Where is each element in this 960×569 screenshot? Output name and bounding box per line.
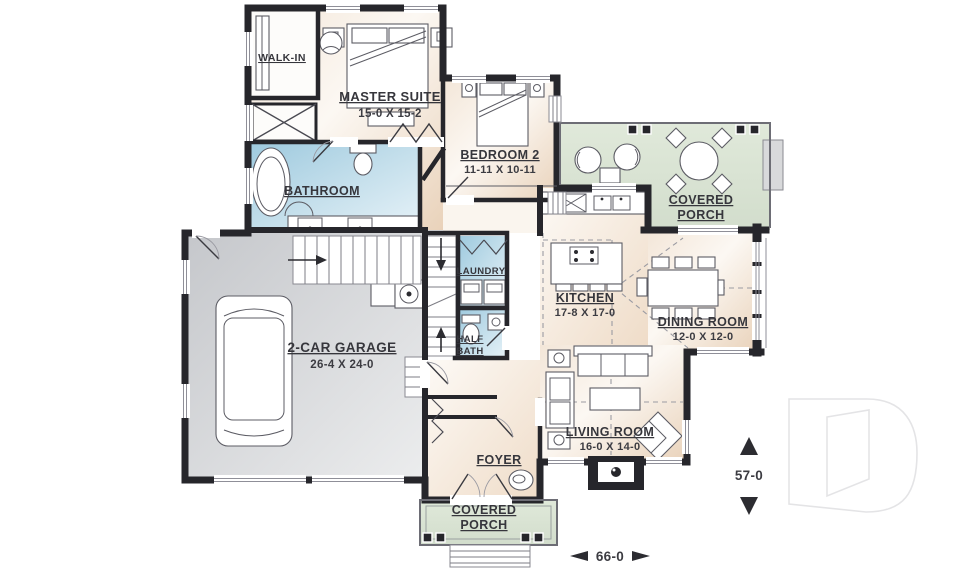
width-dimension: 66-0 bbox=[570, 549, 650, 564]
label-covered-porch-rear-2: PORCH bbox=[677, 208, 724, 222]
right-arrow-icon bbox=[632, 551, 650, 561]
label-covered-porch-rear-1: COVERED bbox=[669, 193, 734, 207]
label-covered-porch-front-2: PORCH bbox=[460, 518, 507, 532]
dims-living-room: 16-0 X 14-0 bbox=[580, 441, 641, 453]
drummond-d-logo bbox=[789, 399, 917, 512]
label-kitchen: KITCHEN bbox=[556, 291, 614, 305]
label-foyer: FOYER bbox=[476, 453, 521, 467]
chaise-icon bbox=[546, 372, 574, 428]
left-arrow-icon bbox=[570, 551, 588, 561]
dims-garage: 26-4 X 24-0 bbox=[310, 359, 373, 371]
up-arrow-icon bbox=[740, 437, 758, 455]
car-icon bbox=[216, 296, 292, 446]
sofa-icon bbox=[574, 346, 652, 376]
main-stairs bbox=[427, 236, 456, 356]
label-master-suite: MASTER SUITE bbox=[339, 89, 441, 104]
garage-stairs bbox=[288, 236, 421, 284]
kitchen-island-icon bbox=[551, 243, 622, 291]
coffee-table-icon bbox=[590, 388, 640, 410]
porch-bay bbox=[763, 140, 783, 190]
label-covered-porch-front-1: COVERED bbox=[452, 503, 517, 517]
bathtub-icon bbox=[252, 148, 290, 216]
label-bathroom: BATHROOM bbox=[284, 184, 360, 198]
width-value: 66-0 bbox=[596, 549, 624, 564]
floor-plan-drawing: WALK-IN MASTER SUITE 15-0 X 15-2 BEDROOM… bbox=[0, 0, 960, 569]
label-bedroom-2: BEDROOM 2 bbox=[460, 148, 539, 162]
label-laundry: LAUNDRY bbox=[457, 266, 506, 277]
label-half-bath-1: HALF bbox=[457, 334, 484, 345]
depth-dimension: 57-0 bbox=[735, 437, 763, 515]
label-half-bath-2: BATH bbox=[456, 346, 483, 357]
depth-value: 57-0 bbox=[735, 468, 763, 483]
label-dining-room: DINING ROOM bbox=[658, 315, 749, 329]
dims-dining-room: 12-0 X 12-0 bbox=[673, 331, 734, 343]
label-walk-in: WALK-IN bbox=[258, 52, 306, 64]
floor-plan-page: WALK-IN MASTER SUITE 15-0 X 15-2 BEDROOM… bbox=[0, 0, 960, 569]
dims-kitchen: 17-8 X 17-0 bbox=[555, 307, 616, 319]
master-chair-icon bbox=[320, 32, 342, 54]
dims-master-suite: 15-0 X 15-2 bbox=[358, 108, 421, 120]
label-garage: 2-CAR GARAGE bbox=[287, 340, 396, 355]
down-arrow-icon bbox=[740, 497, 758, 515]
foyer-plant-icon bbox=[509, 470, 533, 490]
label-living-room: LIVING ROOM bbox=[566, 425, 654, 439]
dims-bedroom-2: 11-11 X 10-11 bbox=[464, 164, 536, 176]
